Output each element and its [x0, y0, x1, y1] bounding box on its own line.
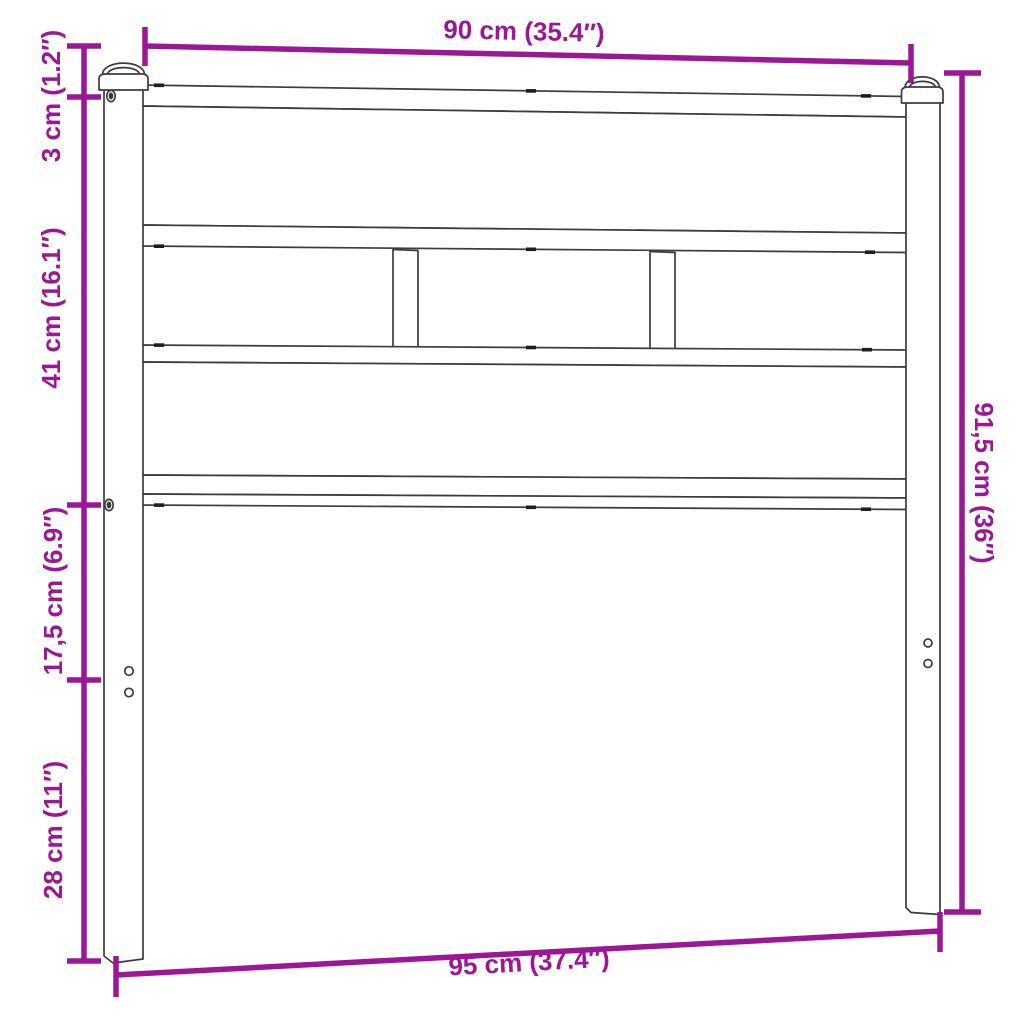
- dimension-label-top-width: 90 cm (35.4″): [443, 16, 605, 46]
- left-post-bolt-top: [107, 90, 115, 101]
- dimension-label-left-segment-3cm: 3 cm (1.2″): [38, 30, 64, 162]
- dimension-label-left-segment-28cm: 28 cm (11″): [40, 761, 66, 899]
- left-post-bolt-middle: [105, 499, 113, 510]
- headboard-dimension-diagram: 90 cm (35.4″) 95 cm (37.4″) 91,5 cm (36″…: [0, 0, 1024, 1024]
- right-post: [906, 99, 940, 915]
- left-post: [104, 86, 143, 963]
- bottom-board: [140, 362, 908, 479]
- lattice-divider-right: [650, 252, 675, 351]
- dimension-label-right-height: 91,5 cm (36″): [971, 402, 997, 563]
- right-post-hole-lower: [924, 660, 932, 668]
- top-board: [140, 106, 908, 233]
- left-post-hole-lower: [125, 688, 133, 696]
- left-post-hole-upper: [125, 667, 133, 675]
- left-post-cap-base: [99, 74, 148, 90]
- left-post-cap-dome-inner: [108, 68, 140, 74]
- headboard-drawing: [0, 0, 1024, 1024]
- lattice-divider-left: [393, 250, 418, 350]
- right-post-hole-upper: [924, 639, 932, 647]
- dimension-label-left-segment-41cm: 41 cm (16.1″): [38, 227, 64, 388]
- dimension-line-left-segments: [67, 46, 101, 961]
- dimension-label-left-segment-17-5cm: 17,5 cm (6.9″): [40, 507, 66, 676]
- right-post-cap-base: [902, 87, 944, 103]
